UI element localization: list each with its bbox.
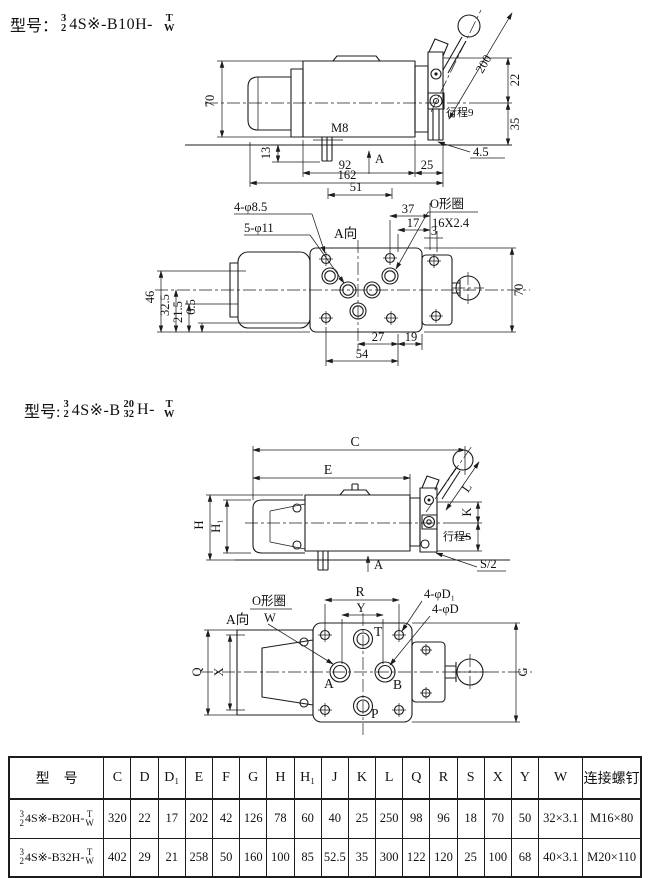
- model-label-2: 型号: 3 2 4S※-B 20 32 H- T W: [24, 398, 174, 422]
- header-model: 型 号: [9, 757, 104, 799]
- cell-s: 18: [457, 799, 484, 838]
- header-r: R: [430, 757, 457, 799]
- dim-21-5-label: 21.5: [171, 301, 185, 323]
- fig1-ports: [322, 268, 398, 319]
- model2-prefix: 型号:: [24, 398, 60, 422]
- dim-y-label: Y: [356, 601, 365, 615]
- stroke-s-label: 行程S: [443, 530, 471, 543]
- view-a-label: A向: [334, 226, 357, 241]
- header-y: Y: [511, 757, 538, 799]
- dim-25-label: 25: [421, 158, 434, 172]
- fig1-side-dimensions: 70 M8 13 92 A 25 162 51 200 22 35 行程9 4.…: [203, 13, 522, 199]
- cell-f: 50: [212, 838, 239, 877]
- cell-w: 32×3.1: [539, 799, 583, 838]
- cell-h1: 60: [294, 799, 321, 838]
- fig2-oring-w-label: W: [264, 611, 276, 625]
- fig2-mount-holes: [318, 628, 406, 717]
- dim-51-label: 51: [350, 180, 363, 194]
- holes-d-label: 4-φD: [432, 602, 459, 616]
- cell-k: 25: [348, 799, 375, 838]
- dim-6-5-label: 6.5: [184, 299, 198, 315]
- dim-35-label: 35: [508, 118, 522, 131]
- dim-200-label: 200: [473, 52, 494, 75]
- dim-r-label: R: [355, 584, 364, 599]
- figure1-drawing: 70 M8 13 92 A 25 162 51 200 22 35 行程9 4.…: [0, 0, 650, 400]
- catalog-page: { "model1": {"prefix":"型号：","num":"3","d…: [0, 0, 650, 874]
- fig2-view-a-label: A向: [226, 612, 249, 627]
- fig2-ports: [330, 630, 395, 716]
- table-row-b32h: 32 4S※-B32H- TW 402 29 21 258 50 160 100…: [9, 838, 641, 877]
- fig1-mount-holes: [319, 251, 443, 325]
- row1-body: 4S※-B20H-: [25, 811, 84, 826]
- dim-19-label: 19: [405, 330, 418, 344]
- fig1-bottom-view: [155, 240, 530, 346]
- dim-width-70-label: 70: [512, 284, 526, 297]
- model2-fraction: 3 2: [63, 400, 68, 421]
- cell-screws: M16×80: [583, 799, 641, 838]
- header-j: J: [321, 757, 348, 799]
- cell-h1: 85: [294, 838, 321, 877]
- dim-13-label: 13: [259, 147, 273, 160]
- dim-c-label: C: [350, 434, 359, 449]
- model-cell: 32 4S※-B32H- TW: [9, 838, 104, 877]
- port-p-label: P: [371, 706, 379, 721]
- dimension-table: 型 号 C D D₁ E F G H H₁ J K L Q R S X Y W …: [8, 756, 642, 878]
- model2-sub: W: [164, 410, 175, 421]
- cell-l: 300: [376, 838, 403, 877]
- cell-c: 320: [104, 799, 131, 838]
- cell-y: 68: [511, 838, 538, 877]
- fig2-view-a-arrow-label: A: [374, 558, 383, 572]
- dim-54-label: 54: [356, 347, 369, 361]
- fig1-bottom-dimensions: 4-φ8.5 5-φ11 A向 37 17 3 O形圈 16X2.4 46 32…: [143, 197, 526, 366]
- model2-den2: 32: [124, 410, 135, 421]
- cell-h: 100: [267, 838, 294, 877]
- table-header-row: 型 号 C D D₁ E F G H H₁ J K L Q R S X Y W …: [9, 757, 641, 799]
- cell-d: 22: [131, 799, 158, 838]
- thread-m8-label: M8: [331, 121, 348, 135]
- dim-27-label: 27: [372, 330, 385, 344]
- cell-l: 250: [376, 799, 403, 838]
- cell-q: 98: [403, 799, 430, 838]
- cell-r: 96: [430, 799, 457, 838]
- header-s: S: [457, 757, 484, 799]
- dim-x-label: X: [212, 667, 226, 676]
- view-a-arrow-label: A: [375, 152, 384, 166]
- model2-suffix: T W: [164, 400, 175, 421]
- header-k: K: [348, 757, 375, 799]
- cell-d: 29: [131, 838, 158, 877]
- row2-body: 4S※-B32H-: [25, 850, 84, 865]
- dim-4-5-label: 4.5: [473, 145, 489, 159]
- cell-s: 25: [457, 838, 484, 877]
- cell-d1: 17: [158, 799, 185, 838]
- cell-h: 78: [267, 799, 294, 838]
- dim-l-label: L: [459, 481, 475, 495]
- fig2-bottom-view: T A B P: [200, 613, 532, 735]
- header-screws: 连接螺钉: [583, 757, 641, 799]
- row2-den: 2: [19, 857, 24, 866]
- cell-y: 50: [511, 799, 538, 838]
- cell-d1: 21: [158, 838, 185, 877]
- cell-x: 70: [484, 799, 511, 838]
- dim-g-label: G: [516, 667, 530, 676]
- dim-e-label: E: [324, 462, 332, 477]
- holes-d1-label: 4-φD₁: [424, 587, 455, 601]
- cell-g: 160: [240, 838, 267, 877]
- dim-h-label: H: [192, 520, 206, 529]
- model2-body2: H-: [137, 401, 155, 419]
- dim-17-label: 17: [407, 216, 420, 230]
- oring-label: O形圈: [430, 197, 464, 211]
- header-c: C: [104, 757, 131, 799]
- cell-k: 35: [348, 838, 375, 877]
- cell-c: 402: [104, 838, 131, 877]
- mount-holes-label: 4-φ8.5: [234, 200, 267, 214]
- fig2-oring-label: O形圈: [252, 594, 286, 608]
- port-t-label: T: [374, 624, 383, 639]
- dim-37-label: 37: [402, 202, 415, 216]
- model-cell: 32 4S※-B20H- TW: [9, 799, 104, 838]
- cell-e: 258: [185, 838, 212, 877]
- header-x: X: [484, 757, 511, 799]
- header-q: Q: [403, 757, 430, 799]
- cell-r: 120: [430, 838, 457, 877]
- header-w: W: [539, 757, 583, 799]
- header-h1: H₁: [294, 757, 321, 799]
- header-g: G: [240, 757, 267, 799]
- dim-k-label: K: [460, 507, 474, 516]
- header-f: F: [212, 757, 239, 799]
- cell-g: 126: [240, 799, 267, 838]
- port-holes-label: 5-φ11: [244, 221, 274, 235]
- cell-w: 40×3.1: [539, 838, 583, 877]
- cell-f: 42: [212, 799, 239, 838]
- port-a-label: A: [324, 676, 334, 691]
- cell-q: 122: [403, 838, 430, 877]
- cell-j: 52.5: [321, 838, 348, 877]
- header-d: D: [131, 757, 158, 799]
- row2-sub: W: [85, 857, 94, 866]
- cell-e: 202: [185, 799, 212, 838]
- table-row-b20h: 32 4S※-B20H- TW 320 22 17 202 42 126 78 …: [9, 799, 641, 838]
- cell-j: 40: [321, 799, 348, 838]
- dim-q-label: Q: [190, 667, 204, 676]
- header-d1: D₁: [158, 757, 185, 799]
- model2-den: 2: [63, 410, 68, 421]
- oring-size-label: 16X2.4: [432, 216, 470, 230]
- cell-screws: M20×110: [583, 838, 641, 877]
- dim-46-label: 46: [143, 291, 157, 304]
- row1-den: 2: [19, 819, 24, 828]
- stroke-9-label: 行程9: [446, 106, 474, 119]
- figure2-drawing: C E H H₁ L K J 行程S S/2 A: [0, 420, 650, 756]
- dim-70-label: 70: [203, 95, 217, 108]
- row1-sub: W: [85, 819, 94, 828]
- port-b-label: B: [393, 677, 402, 692]
- dim-22-label: 22: [508, 74, 522, 87]
- model2-size-fraction: 20 32: [124, 400, 135, 421]
- cell-x: 100: [484, 838, 511, 877]
- header-e: E: [185, 757, 212, 799]
- fig1-side-view: [185, 10, 512, 161]
- dim-s2-label: S/2: [480, 557, 497, 571]
- model2-body: 4S※-B: [72, 400, 121, 420]
- header-h: H: [267, 757, 294, 799]
- dim-32-5-label: 32.5: [158, 294, 172, 316]
- dim-h1-label: H₁: [209, 519, 223, 532]
- header-l: L: [376, 757, 403, 799]
